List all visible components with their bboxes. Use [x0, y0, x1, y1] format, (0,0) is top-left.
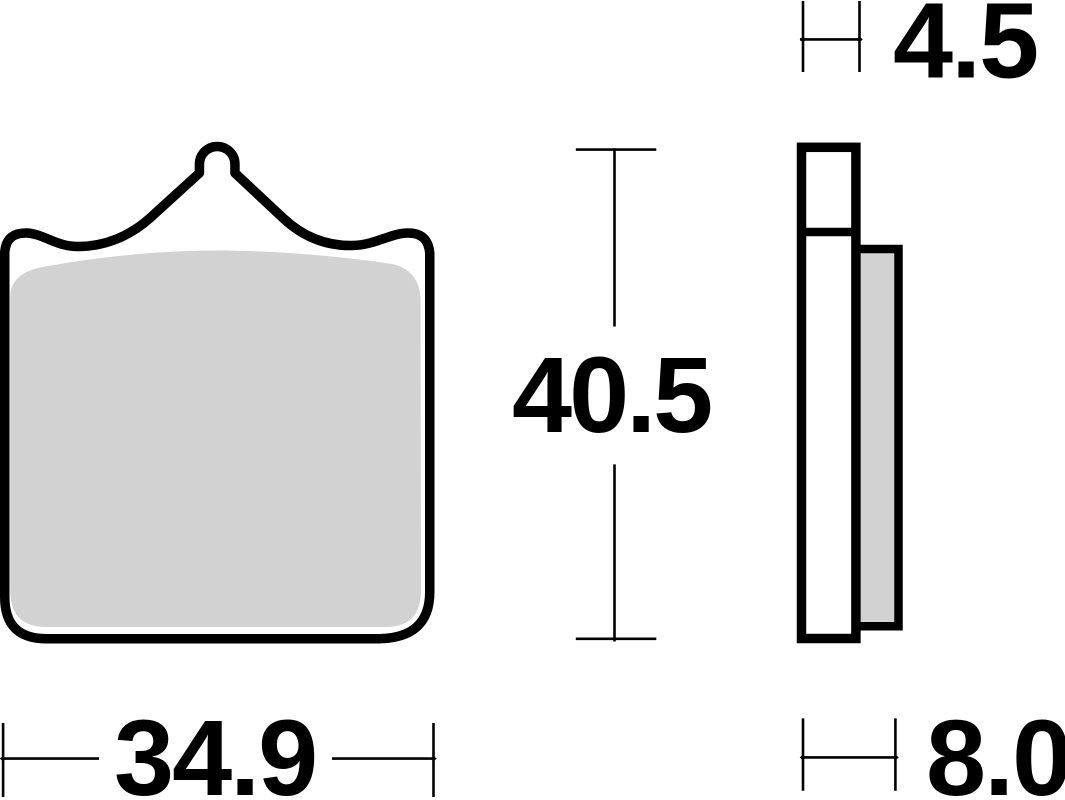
svg-text:8.0: 8.0	[926, 697, 1065, 800]
svg-text:34.9: 34.9	[114, 697, 316, 800]
svg-text:40.5: 40.5	[512, 334, 711, 455]
svg-text:4.5: 4.5	[893, 0, 1037, 101]
